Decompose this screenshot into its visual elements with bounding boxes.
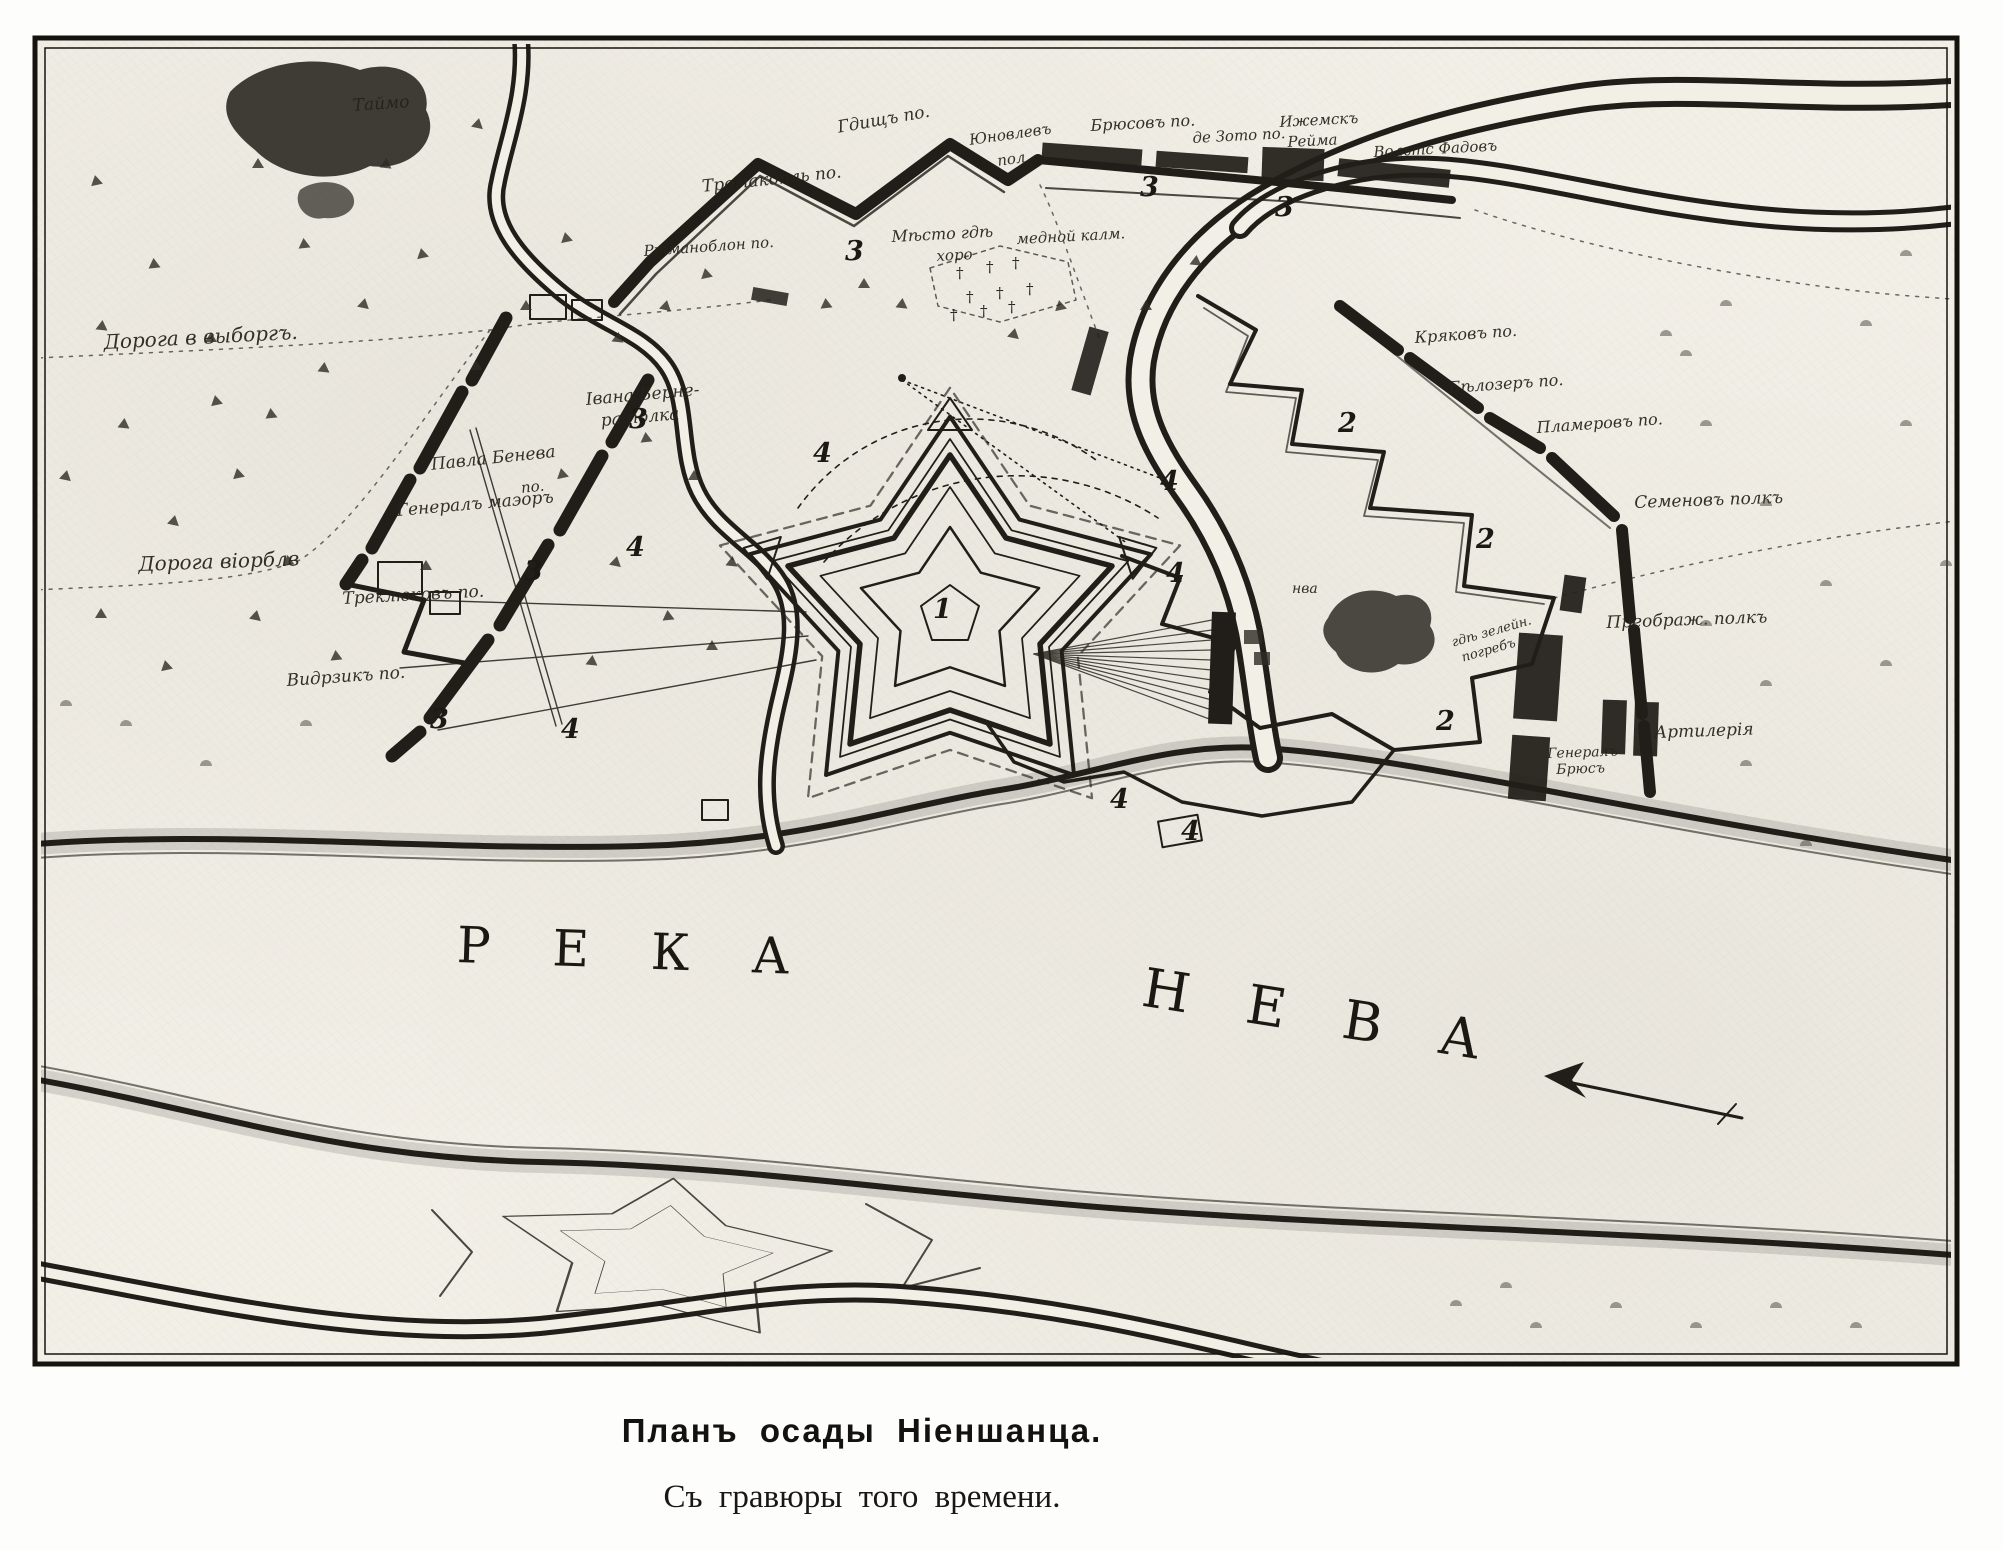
bush-icon (1690, 1322, 1702, 1328)
bush-icon (1900, 250, 1912, 256)
house-icon (415, 247, 429, 259)
bush-icon (200, 760, 212, 766)
house-icon (205, 332, 217, 342)
map-label: Преображ. полкъ (1606, 607, 1768, 633)
bush-icon (1660, 330, 1672, 336)
bush-icon (1530, 1322, 1542, 1328)
grave-cross-icon: † (980, 304, 988, 319)
siege-key-number: 4 (626, 534, 645, 561)
river-name: НЕВА (1138, 956, 1542, 1081)
house-icon (1140, 300, 1152, 310)
house-icon (118, 417, 131, 428)
map-label: де Зото по. (1192, 124, 1286, 147)
house-icon (96, 319, 109, 330)
house-icon (1190, 254, 1203, 265)
siege-key-number: 3 (524, 558, 543, 585)
house-icon (252, 158, 264, 168)
grave-cross-icon: † (956, 266, 964, 281)
map-label: нва (1292, 581, 1318, 597)
house-icon (858, 278, 870, 288)
map-label: Кряковъ по. (1414, 321, 1518, 347)
map-label: медной калм. (1016, 224, 1126, 248)
house-icon (231, 467, 245, 479)
caption-title: Планъ осады Ніеншанца. (0, 1412, 1724, 1450)
bush-icon (1740, 760, 1752, 766)
siege-key-number: 2 (1436, 708, 1455, 735)
siege-key-number: 3 (845, 238, 864, 265)
map-label: Гдищъ по. (836, 102, 931, 138)
house-icon (159, 659, 173, 671)
house-icon (559, 231, 573, 243)
siege-key-number: 4 (1110, 786, 1129, 813)
house-icon (609, 555, 623, 567)
house-icon (298, 237, 311, 248)
bush-icon (1770, 1302, 1782, 1308)
map-label: Видрзикъ по. (286, 663, 406, 691)
siege-key-number: 3 (629, 406, 648, 433)
map-label: Юновлевъ (968, 119, 1052, 148)
house-icon (89, 174, 103, 186)
map-label: Брюсовъ по. (1090, 111, 1196, 135)
house-icon (330, 649, 343, 660)
house-icon (1053, 299, 1067, 311)
bush-icon (1860, 320, 1872, 326)
map-label: Тромакопль по. (701, 162, 842, 197)
grave-cross-icon: † (986, 260, 994, 275)
bush-icon (1800, 840, 1812, 846)
siege-key-number: 1 (933, 596, 952, 623)
house-icon (59, 469, 73, 481)
house-icon (726, 555, 739, 566)
bush-icon (1760, 500, 1772, 506)
house-icon (249, 609, 263, 621)
house-icon (586, 654, 599, 665)
house-icon (520, 300, 532, 310)
bush-icon (60, 700, 72, 706)
map-label: Генералъ (1547, 744, 1618, 762)
house-icon (357, 297, 371, 309)
house-icon (318, 361, 331, 372)
house-icon (555, 467, 569, 479)
bush-icon (1500, 1282, 1512, 1288)
map-label: Вольтс Фадовъ (1373, 137, 1498, 161)
engraving-page: ТаймоДорога в выборгъ.Дорога віорблвІван… (0, 0, 2003, 1550)
house-icon (148, 257, 161, 268)
map-label: Пламеровъ по. (1536, 409, 1663, 437)
house-icon (688, 470, 700, 480)
bush-icon (1700, 620, 1712, 626)
siege-key-number: 4 (1166, 560, 1185, 587)
map-label: Мѣсто гдѣ (891, 222, 994, 246)
siege-key-number: 4 (1160, 468, 1179, 495)
house-icon (471, 117, 485, 129)
siege-key-number: 2 (1338, 410, 1357, 437)
bush-icon (1900, 420, 1912, 426)
map-label: пол. (996, 147, 1031, 169)
grave-cross-icon: † (950, 308, 958, 323)
siege-key-number: 4 (813, 440, 832, 467)
house-icon (662, 609, 675, 620)
house-icon (820, 297, 833, 308)
house-icon (420, 560, 432, 570)
map-label: Дорога в выборгъ. (103, 320, 298, 354)
map-label: Артилерія (1654, 720, 1754, 743)
bush-icon (1700, 420, 1712, 426)
river-name: РЕКА (456, 916, 853, 988)
bush-icon (1450, 1300, 1462, 1306)
map-label: Павла Бенева (430, 442, 556, 475)
grave-cross-icon: † (996, 286, 1004, 301)
bush-icon (1610, 1302, 1622, 1308)
map-label: Таймо (352, 92, 410, 116)
caption: Планъ осады Ніеншанца. Съ гравюры того в… (0, 1412, 1724, 1516)
siege-key-number: 3 (430, 706, 449, 733)
siege-key-number: 3 (1275, 194, 1294, 221)
map-label: Семеновъ полкъ (1634, 488, 1783, 513)
house-icon (209, 394, 223, 406)
grave-cross-icon: † (1012, 256, 1020, 271)
house-icon (612, 331, 625, 342)
siege-key-number: 2 (1476, 526, 1495, 553)
grave-cross-icon: † (966, 290, 974, 305)
bush-icon (1760, 680, 1772, 686)
map-label: Бѣлозеръ по. (1448, 370, 1564, 397)
bush-icon (300, 720, 312, 726)
bush-icon (1680, 350, 1692, 356)
house-icon (640, 431, 653, 442)
siege-key-number: 3 (1140, 174, 1159, 201)
bush-icon (1940, 560, 1952, 566)
house-icon (699, 267, 713, 279)
map-label: Ижемскъ (1279, 109, 1359, 131)
caption-subtitle: Съ гравюры того времени. (0, 1479, 1724, 1516)
labels-layer: ТаймоДорога в выборгъ.Дорога віорблвІван… (0, 0, 2003, 1550)
bush-icon (1820, 580, 1832, 586)
house-icon (167, 514, 181, 526)
house-icon (896, 297, 909, 308)
house-icon (95, 608, 107, 618)
house-icon (706, 640, 718, 650)
house-icon (659, 299, 673, 311)
house-icon (380, 157, 393, 168)
house-icon (1007, 327, 1021, 339)
house-icon (282, 554, 295, 565)
map-label: Дорога віорблв (138, 546, 300, 576)
bush-icon (1720, 300, 1732, 306)
siege-key-number: 4 (1181, 818, 1200, 845)
map-label: Ртманоблон по. (643, 233, 774, 260)
map-label: Генералъ маэоръ (396, 487, 555, 521)
map-label: хоро (936, 245, 973, 265)
map-label: Треклюковъ по. (342, 582, 485, 609)
siege-key-number: 4 (561, 716, 580, 743)
map-label: Рейма (1287, 130, 1338, 151)
bush-icon (1850, 1322, 1862, 1328)
grave-cross-icon: † (1008, 300, 1016, 315)
grave-cross-icon: † (1026, 282, 1034, 297)
bush-icon (1880, 660, 1892, 666)
house-icon (265, 407, 278, 418)
bush-icon (120, 720, 132, 726)
house-icon (470, 359, 483, 370)
map-label: Брюсъ (1556, 760, 1605, 778)
